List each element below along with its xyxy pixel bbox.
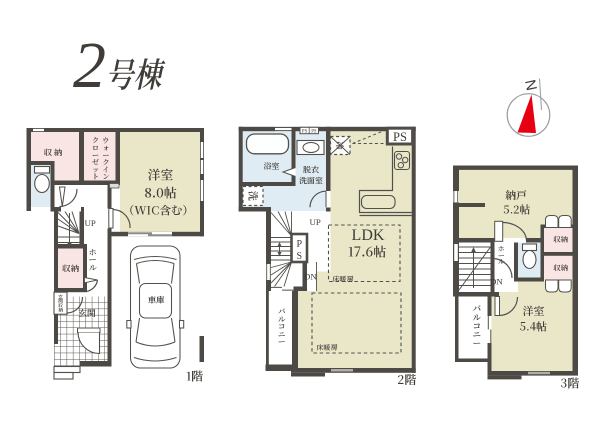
svg-text:バルコニー: バルコニー — [471, 304, 483, 347]
svg-text:収納: 収納 — [62, 263, 80, 275]
svg-text:P: P — [297, 239, 303, 250]
svg-text:洗面室: 洗面室 — [299, 176, 323, 187]
svg-text:2階: 2階 — [398, 371, 417, 388]
svg-text:N: N — [521, 78, 540, 92]
svg-text:バルコニー: バルコニー — [276, 307, 287, 345]
svg-text:ホール: ホール — [496, 244, 506, 264]
svg-text:DN: DN — [490, 277, 503, 287]
svg-text:3階: 3階 — [561, 375, 580, 392]
svg-text:洗: 洗 — [247, 190, 262, 201]
svg-text:（WIC含む）: （WIC含む） — [123, 203, 194, 219]
svg-text:車庫: 車庫 — [147, 294, 165, 306]
svg-text:クローゼット: クローゼット — [91, 137, 101, 181]
svg-text:浴室: 浴室 — [264, 161, 280, 172]
svg-text:洋室: 洋室 — [523, 303, 545, 319]
svg-text:収納: 収納 — [553, 263, 568, 274]
svg-text:収納: 収納 — [553, 234, 568, 245]
svg-text:冷: 冷 — [334, 141, 346, 150]
svg-text:PS: PS — [302, 129, 308, 134]
svg-text:17.6帖: 17.6帖 — [348, 242, 386, 261]
svg-text:5.2帖: 5.2帖 — [504, 203, 532, 218]
svg-text:玄関収納: 玄関収納 — [58, 294, 64, 312]
svg-text:ホール: ホール — [87, 247, 98, 271]
svg-text:DN: DN — [304, 272, 317, 282]
svg-text:PS: PS — [311, 129, 317, 134]
svg-text:床暖房: 床暖房 — [333, 275, 354, 285]
svg-text:ウォークイン: ウォークイン — [101, 137, 111, 180]
svg-text:納戸: 納戸 — [505, 188, 527, 203]
svg-text:玄関: 玄関 — [78, 307, 96, 320]
svg-text:1階: 1階 — [186, 368, 204, 385]
svg-text:2: 2 — [73, 29, 106, 102]
svg-text:5.4帖: 5.4帖 — [520, 319, 548, 335]
svg-text:洋室: 洋室 — [148, 165, 174, 184]
svg-text:8.0帖: 8.0帖 — [145, 183, 177, 202]
svg-text:号棟: 号棟 — [103, 49, 169, 98]
svg-text:床暖房: 床暖房 — [317, 343, 338, 353]
svg-text:S: S — [297, 251, 303, 262]
svg-text:収納: 収納 — [44, 147, 65, 159]
svg-text:脱衣: 脱衣 — [303, 165, 319, 176]
svg-text:UP: UP — [85, 218, 96, 228]
svg-text:UP: UP — [310, 217, 321, 227]
svg-text:PS: PS — [393, 130, 407, 144]
